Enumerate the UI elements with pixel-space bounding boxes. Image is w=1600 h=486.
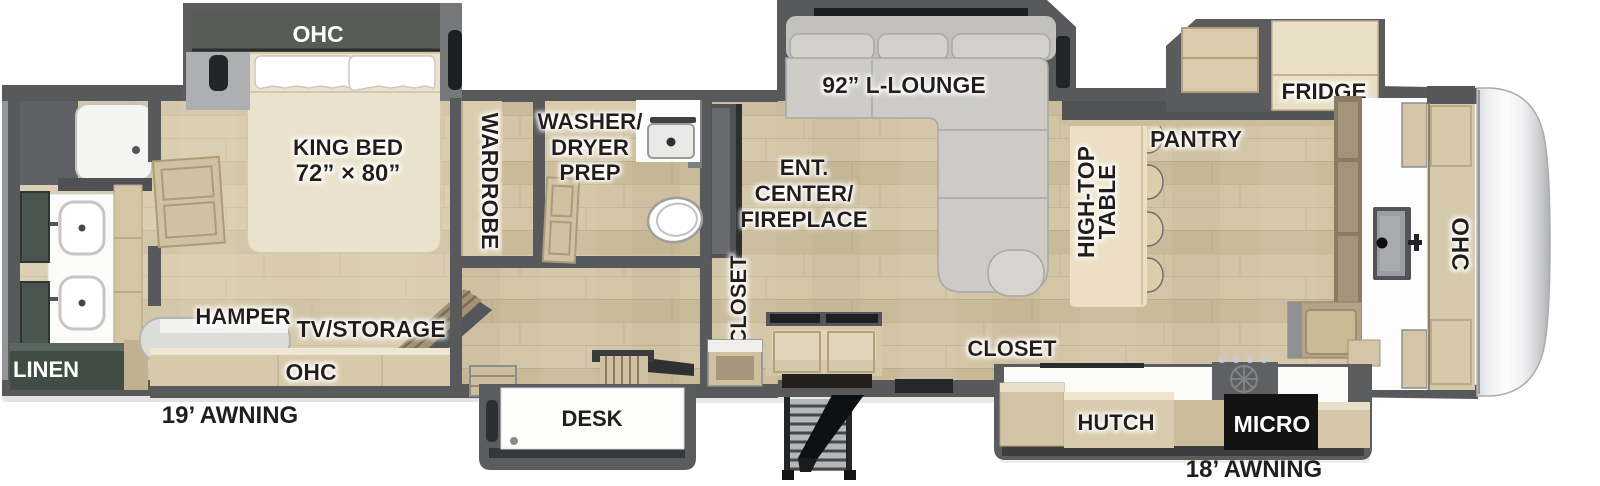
svg-text:TV/STORAGE: TV/STORAGE: [296, 316, 445, 342]
svg-text:18’ AWNING: 18’ AWNING: [1186, 456, 1322, 483]
svg-text:CENTER/: CENTER/: [755, 181, 855, 206]
svg-text:92” L-LOUNGE: 92” L-LOUNGE: [822, 72, 986, 98]
svg-text:TABLE: TABLE: [1094, 165, 1120, 240]
svg-text:PREP: PREP: [559, 160, 620, 185]
svg-text:FIREPLACE: FIREPLACE: [740, 207, 868, 232]
svg-text:CLOSET: CLOSET: [726, 255, 751, 345]
svg-text:KING BED: KING BED: [293, 135, 403, 160]
svg-text:CLOSET: CLOSET: [967, 336, 1057, 361]
svg-text:72” × 80”: 72” × 80”: [296, 160, 401, 187]
svg-text:DRYER: DRYER: [551, 135, 629, 160]
svg-text:PANTRY: PANTRY: [1150, 126, 1242, 152]
svg-text:OHC: OHC: [285, 359, 336, 385]
svg-text:ENT.: ENT.: [780, 155, 829, 180]
svg-text:HUTCH: HUTCH: [1078, 410, 1155, 435]
svg-text:HAMPER: HAMPER: [195, 304, 290, 329]
svg-text:OHC: OHC: [292, 21, 343, 47]
svg-text:MICRO: MICRO: [1234, 411, 1311, 437]
svg-text:LINEN: LINEN: [13, 357, 79, 382]
svg-text:19’ AWNING: 19’ AWNING: [162, 402, 298, 429]
svg-text:OHC: OHC: [1446, 217, 1473, 270]
svg-text:WASHER/: WASHER/: [537, 109, 643, 134]
svg-text:DESK: DESK: [561, 406, 622, 431]
svg-text:WARDROBE: WARDROBE: [477, 113, 503, 250]
